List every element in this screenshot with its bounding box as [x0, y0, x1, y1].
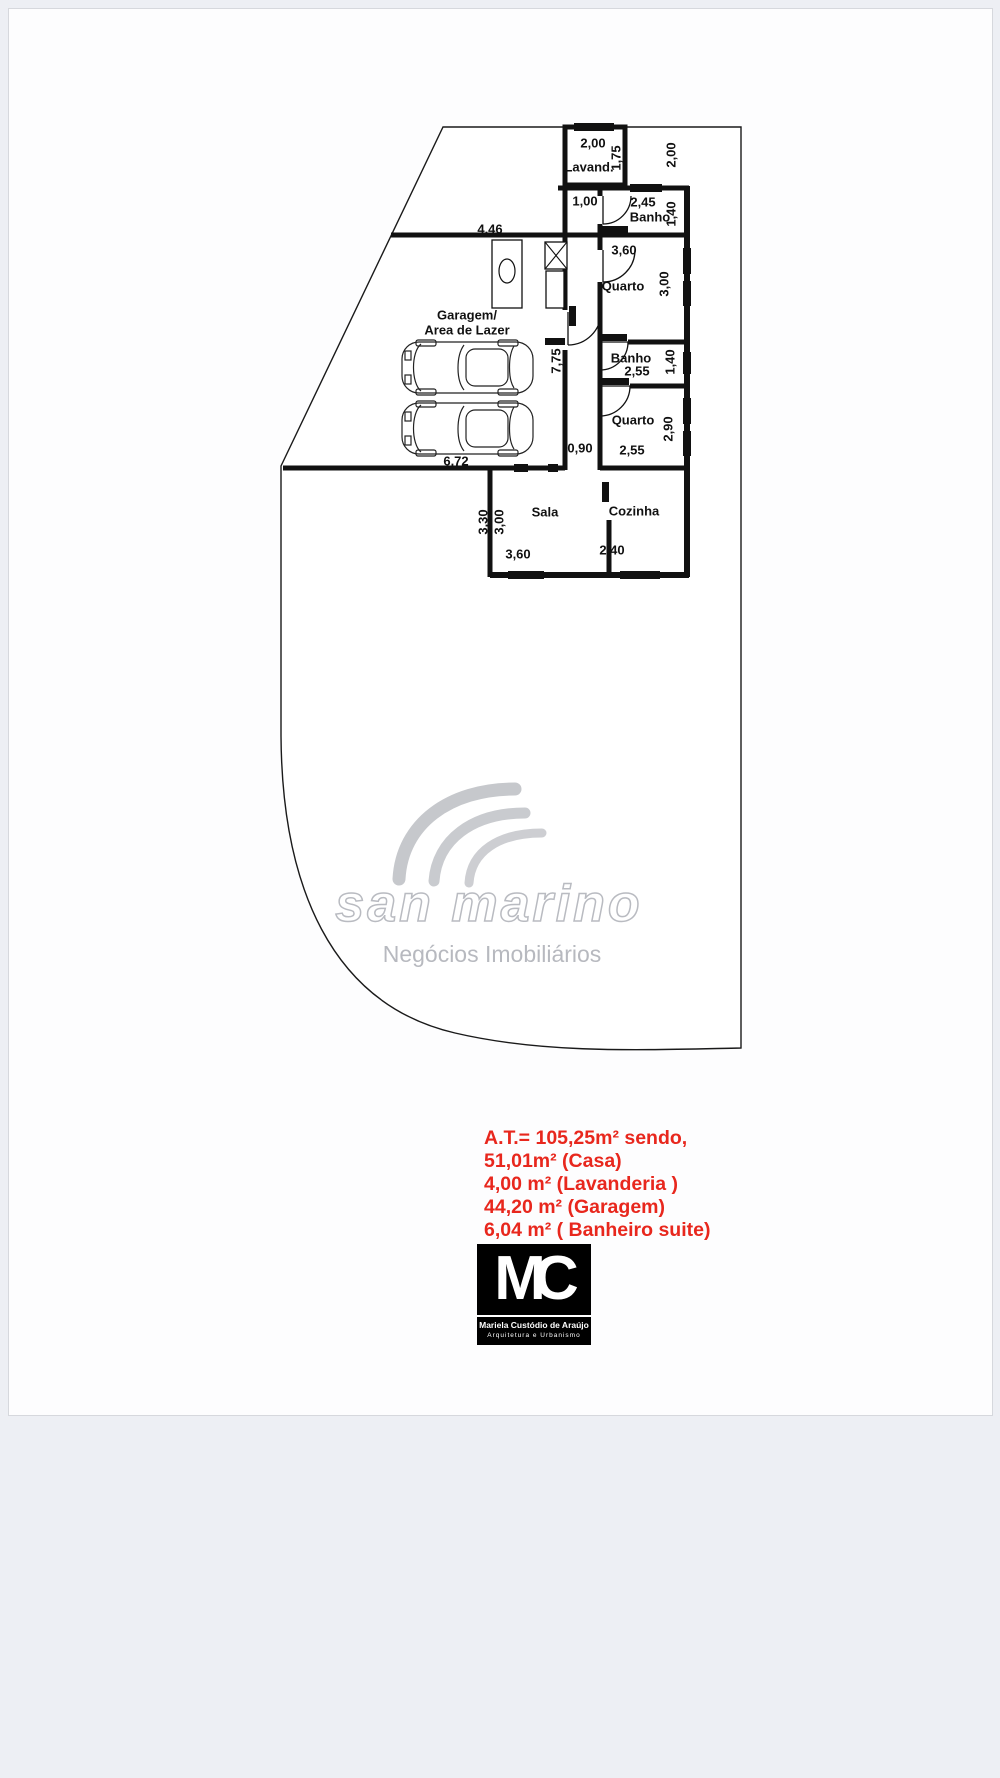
- dim-sala-width: 3,60: [505, 548, 530, 561]
- floor-plan-drawing: san marino Negócios Imobiliários: [0, 0, 1000, 1778]
- room-garagem-line1: Garagem/: [437, 309, 497, 322]
- dim-banho2-height: 1,40: [664, 349, 677, 374]
- room-cozinha: Cozinha: [609, 505, 660, 518]
- dim-hall-top: 1,00: [572, 195, 597, 208]
- architect-logo: MC Mariela Custódio de Araújo Arquitetur…: [477, 1244, 591, 1345]
- dim-quarto-suite-width: 3,60: [611, 244, 636, 257]
- door-size-tag: [602, 482, 609, 502]
- area-summary-line: 51,01m² (Casa): [484, 1150, 710, 1173]
- room-garagem-line2: Area de Lazer: [424, 324, 509, 337]
- area-summary-line: 4,00 m² (Lavanderia ): [484, 1173, 710, 1196]
- window-icon: [574, 123, 614, 131]
- dim-setback-right: 2,00: [665, 142, 678, 167]
- door-size-tag: [602, 226, 628, 233]
- window-icon: [683, 431, 691, 456]
- window-icon: [683, 398, 691, 424]
- dim-garagem-height: 7,75: [550, 348, 563, 373]
- window-icon: [508, 571, 544, 579]
- window-icon: [630, 184, 662, 192]
- dim-banho2-width: 2,55: [624, 365, 649, 378]
- window-icon: [683, 281, 691, 306]
- door-size-tag: [569, 306, 576, 326]
- counter: [492, 240, 522, 308]
- cabinet: [546, 271, 564, 308]
- dim-garagem-width: 6,72: [443, 455, 468, 468]
- dim-banho-suite-height: 1,40: [665, 201, 678, 226]
- room-quarto-suite: Quarto: [602, 280, 645, 293]
- logo-mc-monogram: MC: [477, 1244, 591, 1317]
- area-summary-line: A.T.= 105,25m² sendo,: [484, 1127, 710, 1150]
- dim-quarto2-width: 2,55: [619, 444, 644, 457]
- area-summary: A.T.= 105,25m² sendo, 51,01m² (Casa) 4,0…: [484, 1127, 710, 1242]
- area-summary-line: 6,04 m² ( Banheiro suite): [484, 1219, 710, 1242]
- door-size-tag: [600, 378, 629, 385]
- dim-banho-suite-width: 2,45: [630, 196, 655, 209]
- floor-plan-page: san marino Negócios Imobiliários 4,46 2,…: [0, 0, 1000, 1778]
- dim-sala-height-inner: 3,00: [493, 509, 506, 534]
- watermark-brand: san marino: [335, 875, 642, 933]
- logo-letter-c: C: [534, 1244, 574, 1313]
- room-sala: Sala: [532, 506, 559, 519]
- dim-sala-height-outer: 3,30: [477, 509, 490, 534]
- window-icon: [514, 464, 528, 472]
- dim-lavanderia-height: 1,75: [610, 145, 623, 170]
- dim-lavanderia-width: 2,00: [580, 137, 605, 150]
- dim-corridor: 0,90: [567, 442, 592, 455]
- door-size-tag: [545, 338, 565, 345]
- architect-subtitle: Arquitetura e Urbanismo: [477, 1331, 591, 1340]
- room-lavanderia: Lavand.: [564, 161, 613, 174]
- window-icon: [683, 352, 691, 374]
- dim-garage-top: 4,46: [477, 223, 502, 236]
- dim-quarto-suite-height: 3,00: [658, 271, 671, 296]
- dim-quarto2-height: 2,90: [662, 416, 675, 441]
- window-icon: [620, 571, 660, 579]
- door-size-tag: [600, 334, 627, 341]
- window-icon: [548, 464, 558, 472]
- area-summary-line: 44,20 m² (Garagem): [484, 1196, 710, 1219]
- room-quarto2: Quarto: [612, 414, 655, 427]
- dim-cozinha-width: 2,40: [599, 544, 624, 557]
- architect-name: Mariela Custódio de Araújo: [477, 1320, 591, 1331]
- window-icon: [683, 248, 691, 274]
- watermark-tagline: Negócios Imobiliários: [383, 941, 602, 967]
